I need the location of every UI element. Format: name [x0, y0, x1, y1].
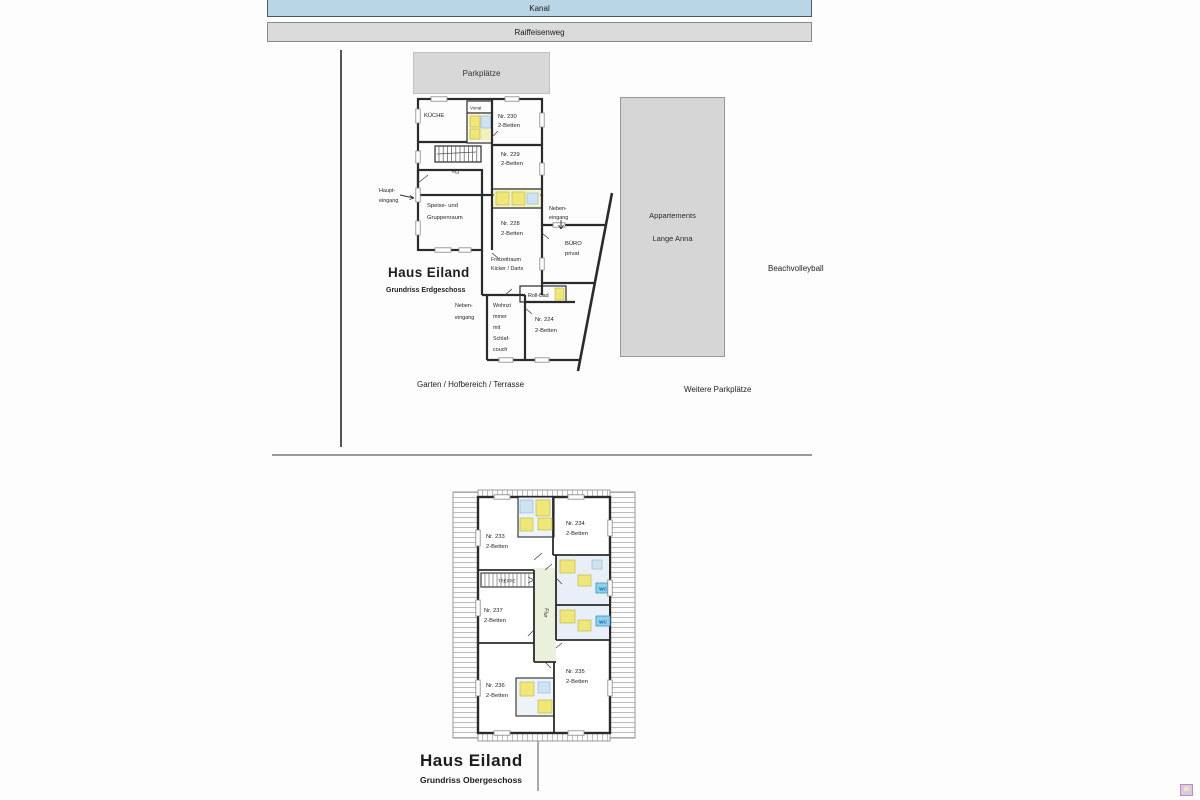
kanal-label: Kanal — [529, 4, 549, 13]
center-axis-line — [537, 741, 539, 791]
nebeneingang-right-label-1: Neben- — [549, 206, 567, 212]
wc-label-1: WC — [599, 587, 607, 592]
wohnzimmer-label-5: couch — [493, 347, 507, 353]
left-boundary-line — [340, 50, 342, 447]
room-235-number: Nr. 235 — [566, 669, 585, 675]
wc-label-2: WC — [599, 620, 607, 625]
upper-floor-plan: WC WC Nr. 233 2-Betten Nr. 234 2-Betten … — [450, 480, 650, 752]
treppe-label: TREPPE — [498, 579, 515, 584]
walls — [418, 99, 605, 360]
ground-floor-plan: KÜCHE Vorrat Nr. 230 2-Betten Nr. 229 2-… — [375, 93, 625, 385]
room-236-beds: 2-Betten — [486, 693, 508, 699]
nebeneingang-bottom-label-1: Neben- — [455, 303, 473, 309]
room-236-number: Nr. 236 — [486, 683, 505, 689]
upper-floor-subtitle: Grundriss Obergeschoss — [420, 775, 522, 785]
haupteingang-label-2: eingang — [379, 198, 398, 204]
speiseraum-label-2: Gruppenraum — [427, 215, 463, 221]
appartements-box: Appartements Lange Anna — [620, 97, 725, 357]
raiffeisenweg-label: Raiffeisenweg — [514, 28, 564, 37]
vorrat-label: Vorrat — [470, 106, 482, 111]
room-235-beds: 2-Betten — [566, 679, 588, 685]
nebeneingang-right-label-2: eingang — [549, 215, 568, 221]
room-224-number: Nr. 224 — [535, 317, 554, 323]
haupteingang-label-1: Haupt- — [379, 188, 395, 194]
appartements-label-2: Lange Anna — [652, 234, 692, 243]
room-224-beds: 2-Betten — [535, 328, 557, 334]
room-230-beds: 2-Betten — [498, 123, 520, 129]
flur-label: Flur — [451, 169, 460, 175]
wohnzimmer-label-2: mmer — [493, 314, 507, 320]
room-233-beds: 2-Betten — [486, 544, 508, 550]
upper-flur-label: Flur — [542, 608, 549, 618]
appartements-label-1: Appartements — [649, 211, 696, 220]
broken-image-icon — [1180, 784, 1193, 796]
wohnzimmer-label-1: Wohnzi — [493, 303, 511, 309]
kanal-street-bar: Kanal — [267, 0, 812, 17]
room-230-number: Nr. 230 — [498, 114, 517, 120]
room-229-number: Nr. 229 — [501, 152, 520, 158]
freizeitraum-label-1: Freizeitraum — [491, 257, 521, 263]
room-228-number: Nr. 228 — [501, 221, 520, 227]
room-237-beds: 2-Betten — [484, 618, 506, 624]
buero-label-2: privat — [565, 251, 580, 257]
nebeneingang-bottom-label-2: eingang — [455, 315, 474, 321]
beachvolleyball-label: Beachvolleyball — [768, 264, 824, 273]
wohnzimmer-label-4: Schlaf- — [493, 336, 510, 342]
speiseraum-label-1: Speise- und — [427, 203, 458, 209]
weitere-parkplaetze-label: Weitere Parkplätze — [684, 385, 751, 394]
parking-area-box: Parkplätze — [413, 52, 550, 94]
section-divider-line — [272, 454, 812, 456]
rollbad-label: Roll-Bad — [528, 293, 549, 299]
floorplan-document: Kanal Raiffeisenweg Parkplätze Apparteme… — [0, 0, 1200, 800]
room-229-beds: 2-Betten — [501, 161, 523, 167]
room-237-number: Nr. 237 — [484, 608, 503, 614]
ground-floor-subtitle: Grundriss Erdgeschoss — [386, 287, 465, 294]
room-233-number: Nr. 233 — [486, 534, 505, 540]
parking-area-label: Parkplätze — [463, 69, 501, 78]
room-234-number: Nr. 234 — [566, 521, 585, 527]
raiffeisenweg-street-bar: Raiffeisenweg — [267, 22, 812, 42]
stair-treads — [437, 146, 477, 162]
buero-label-1: BÜRO — [565, 240, 582, 247]
wohnzimmer-label-3: mit — [493, 325, 501, 331]
freizeitraum-label-2: Kicker / Darts — [491, 266, 524, 272]
room-228-beds: 2-Betten — [501, 231, 523, 237]
ground-floor-title: Haus Eiland — [388, 265, 470, 280]
room-234-beds: 2-Betten — [566, 531, 588, 537]
upper-floor-title: Haus Eiland — [420, 751, 523, 771]
kueche-label: KÜCHE — [424, 112, 444, 119]
